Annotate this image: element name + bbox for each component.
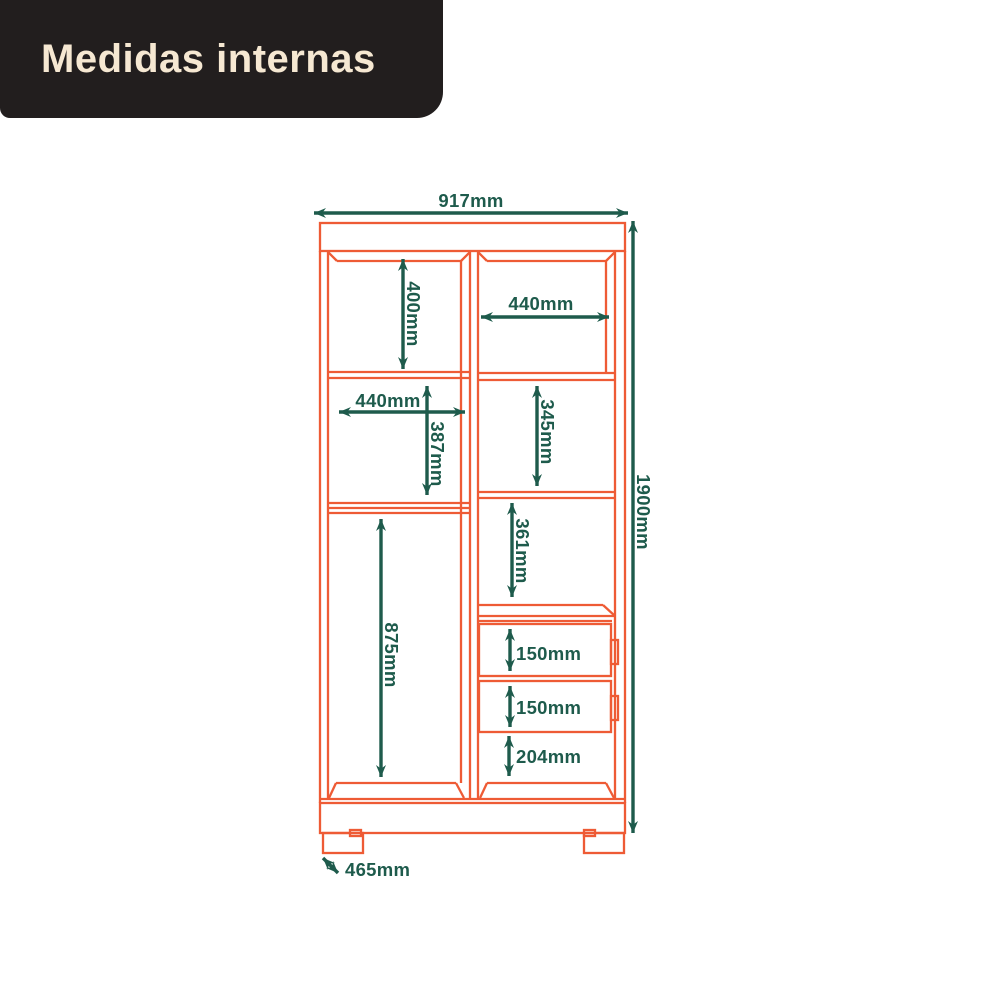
- page: Medidas internas: [0, 0, 1000, 1000]
- right-foot: [584, 830, 624, 853]
- dim-label-right-upper-middle-height: 345mm: [537, 399, 558, 464]
- dim-label-right-lower-middle-height: 361mm: [512, 518, 533, 583]
- dim-label-right-bottom-height: 204mm: [516, 746, 581, 767]
- dim-label-left-top-height: 400mm: [403, 281, 424, 346]
- dimension-annotations: 917mm 1900mm 400mm 440mm 440mm 387mm 345…: [314, 190, 654, 880]
- base-plinth: [320, 799, 625, 833]
- left-foot: [323, 830, 363, 853]
- dim-arrow-base-depth: [323, 858, 338, 873]
- left-side-panel: [320, 251, 328, 803]
- dim-label-left-middle-width: 440mm: [355, 390, 420, 411]
- dim-label-lower-drawer-height: 150mm: [516, 697, 581, 718]
- dim-label-left-middle-height: 387mm: [427, 421, 448, 486]
- dim-label-left-bottom-height: 875mm: [381, 622, 402, 687]
- dim-label-total-height: 1900mm: [633, 474, 654, 550]
- dim-label-upper-drawer-height: 150mm: [516, 643, 581, 664]
- center-divider: [461, 251, 478, 799]
- dim-label-base-depth: 465mm: [345, 859, 410, 880]
- dim-label-right-top-width: 440mm: [508, 293, 573, 314]
- dim-label-total-width: 917mm: [438, 190, 503, 211]
- drawer-top-shelf: [478, 605, 615, 621]
- crown-panel: [320, 223, 625, 251]
- furniture-dimension-diagram: 917mm 1900mm 400mm 440mm 440mm 387mm 345…: [0, 0, 1000, 1000]
- cabinet-floor: [329, 783, 614, 798]
